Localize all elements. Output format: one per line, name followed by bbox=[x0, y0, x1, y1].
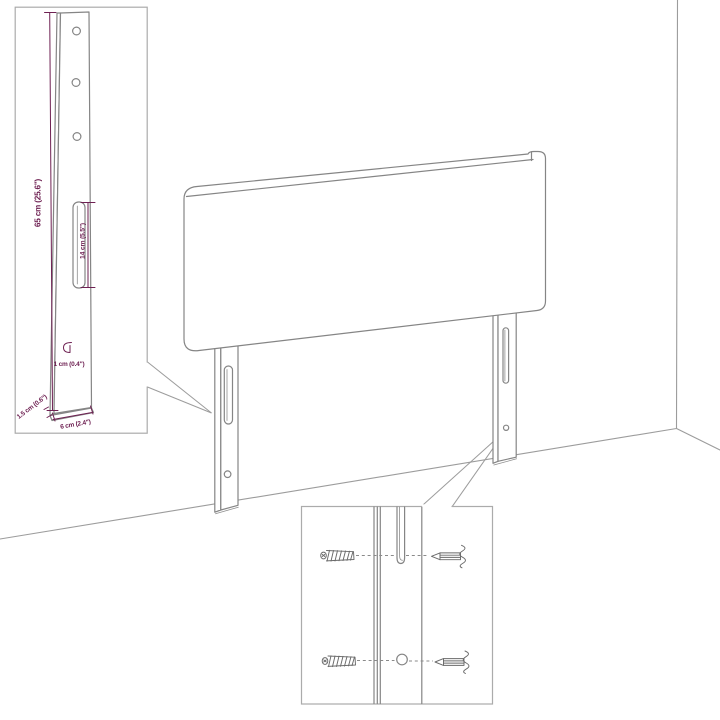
dim-leg-height: 65 cm (25.6") bbox=[34, 178, 43, 227]
inset-leg-dimensions: 65 cm (25.6") 14 cm (5.5") 1 cm (0.4") 6… bbox=[15, 7, 211, 433]
inset-mounting-detail bbox=[302, 504, 493, 704]
callout-left bbox=[148, 362, 212, 413]
panel-front bbox=[184, 152, 546, 351]
floor-line-right bbox=[677, 429, 720, 451]
dim-slot-length: 14 cm (5.5") bbox=[79, 223, 86, 259]
leg-side-face bbox=[215, 343, 221, 512]
diagram-canvas: 65 cm (25.6") 14 cm (5.5") 1 cm (0.4") 6… bbox=[0, 0, 720, 720]
leg-front-face bbox=[498, 311, 516, 461]
wall-corner-line bbox=[677, 0, 678, 429]
headboard-leg-left bbox=[215, 341, 239, 514]
dim-hole-offset: 1 cm (0.4") bbox=[54, 361, 85, 368]
leg-side-face bbox=[493, 313, 498, 463]
headboard-panel bbox=[184, 152, 546, 351]
headboard-leg-right bbox=[493, 311, 517, 465]
headboard-diagram: 65 cm (25.6") 14 cm (5.5") 1 cm (0.4") 6… bbox=[0, 0, 720, 720]
